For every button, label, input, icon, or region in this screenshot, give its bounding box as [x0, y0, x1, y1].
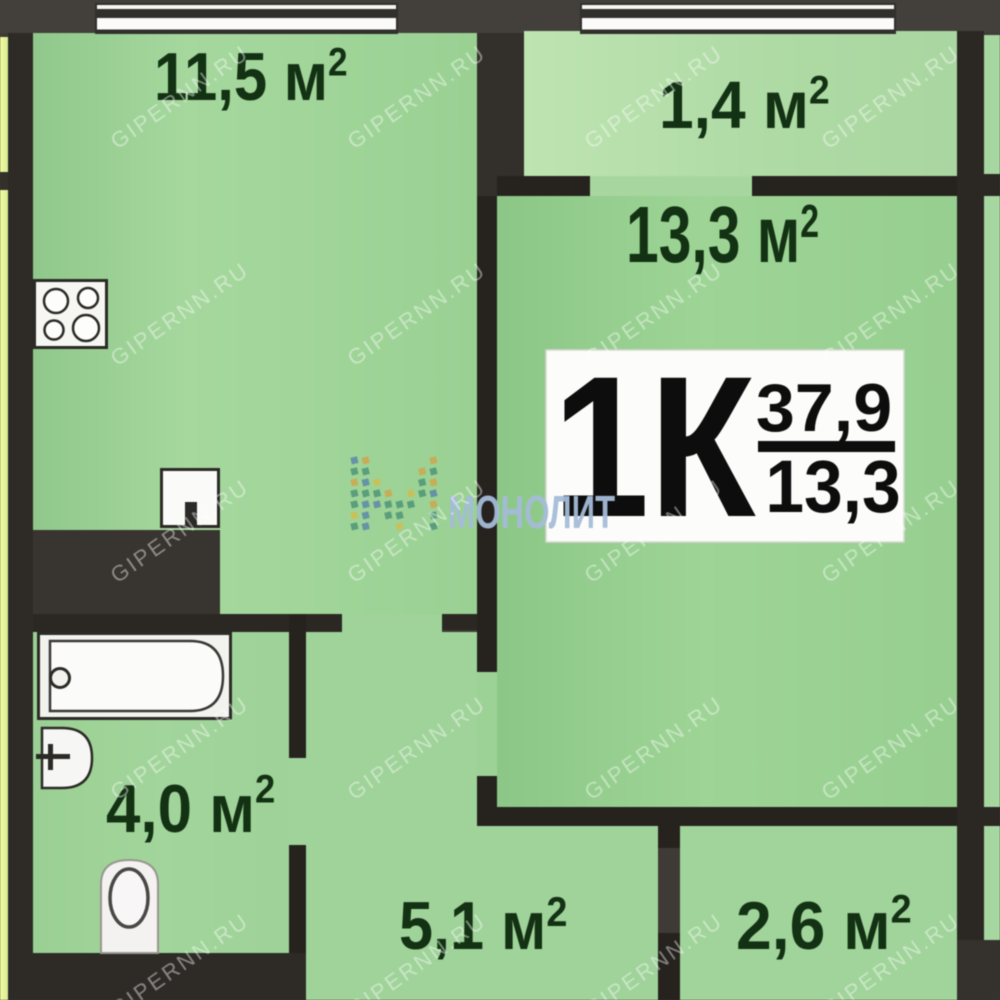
svg-text:13,3 м2: 13,3 м2	[626, 189, 819, 279]
svg-text:37,9: 37,9	[756, 370, 892, 446]
svg-text:13,3: 13,3	[765, 446, 900, 528]
